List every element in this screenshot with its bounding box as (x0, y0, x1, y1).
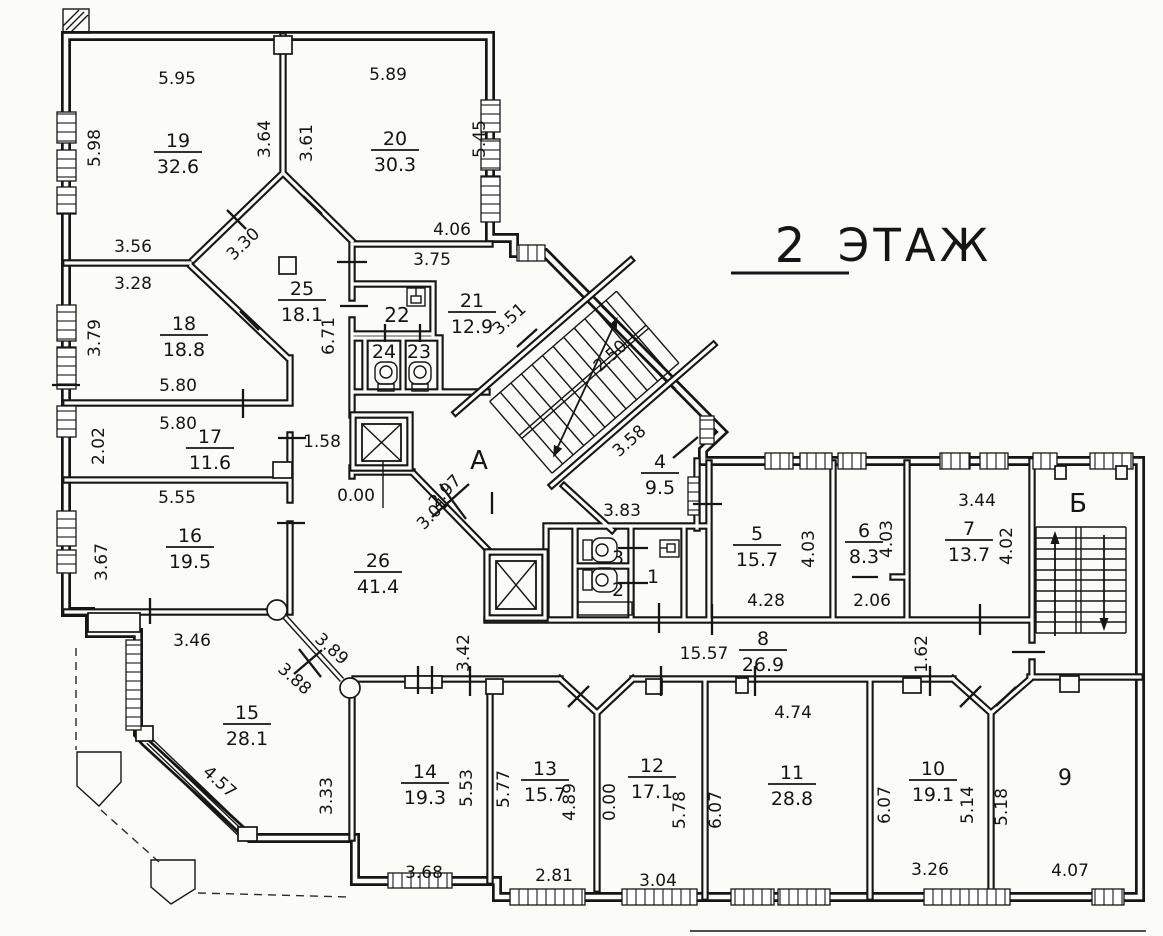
room-number-4: 4 (654, 451, 666, 473)
room-area-10: 19.1 (912, 784, 954, 806)
room-area-12: 17.1 (631, 781, 673, 803)
dimension-label: 5.14 (958, 786, 978, 824)
dimension-label: 3.44 (958, 491, 996, 511)
plan-geometry (646, 679, 662, 694)
plan-geometry (622, 889, 697, 905)
plan-geometry (800, 453, 832, 469)
dimension-label: 3.79 (85, 319, 105, 357)
room-area-26: 41.4 (357, 576, 399, 598)
room-number-20: 20 (383, 128, 407, 150)
dimension-label: 3.51 (489, 299, 531, 339)
porch-2 (151, 860, 195, 904)
plan-geometry (1060, 676, 1079, 692)
mark-label-9: 9 (1058, 766, 1072, 791)
mark-label-23: 23 (407, 341, 431, 363)
room-number-14: 14 (413, 761, 437, 783)
floor-title-number: 2 (775, 218, 806, 274)
plan-geometry (88, 613, 140, 632)
dimension-label: 15.57 (680, 644, 729, 664)
plan-geometry (240, 311, 259, 330)
plan-geometry (57, 150, 76, 181)
porch-1 (77, 752, 121, 806)
plan-geometry (57, 112, 76, 143)
dimension-label: 6.07 (706, 791, 726, 829)
plan-geometry (238, 827, 257, 841)
plan-geometry (380, 366, 392, 378)
room-area-4: 9.5 (645, 477, 675, 499)
room-area-20: 30.3 (374, 154, 416, 176)
room-number-11: 11 (780, 762, 804, 784)
dimension-label: 3.56 (114, 237, 152, 257)
plan-geometry (596, 544, 608, 556)
dimension-label: 1.58 (303, 432, 341, 452)
plan-geometry (731, 889, 774, 905)
plan-geometry (1092, 889, 1124, 905)
plan-geometry (126, 640, 141, 730)
scanned-floor-plan-page: 2 ЭТАЖ 1932.62030.32518.11818.81711.6161… (0, 0, 1163, 936)
plan-geometry (596, 574, 608, 586)
dimension-label: 6.71 (319, 317, 339, 355)
column-round (267, 600, 287, 620)
dimension-label: 5.55 (158, 488, 196, 508)
plan-geometry (405, 676, 442, 688)
plan-geometry (583, 540, 592, 560)
plan-geometry (1036, 527, 1126, 633)
dimension-label: 3.83 (603, 501, 641, 521)
floor-plan-svg: 2 ЭТАЖ 1932.62030.32518.11818.81711.6161… (0, 0, 1163, 936)
plan-geometry (57, 347, 76, 389)
plan-geometry (903, 678, 921, 693)
dimension-label: 0.00 (600, 783, 620, 821)
wc-room-23 (409, 362, 431, 391)
plan-geometry (924, 889, 1010, 905)
plan-geometry (486, 679, 503, 694)
plan-geometry (362, 424, 401, 461)
dimension-label: 3.04 (639, 871, 677, 891)
room-number-15: 15 (235, 702, 259, 724)
plan-geometry (375, 362, 397, 384)
room-area-25: 18.1 (281, 304, 323, 326)
room-number-7: 7 (963, 518, 975, 540)
dimension-label: 3.26 (911, 860, 949, 880)
dimension-label: 4.28 (747, 591, 785, 611)
plan-geometry (667, 544, 675, 552)
plan-geometry (63, 10, 88, 33)
title: 2 ЭТАЖ (731, 218, 992, 274)
dimension-label: 3.64 (255, 120, 275, 158)
room-area-19: 32.6 (157, 156, 199, 178)
room-area-7: 13.7 (948, 544, 990, 566)
wc-shelf (578, 602, 632, 615)
dimension-label: 2.06 (853, 591, 891, 611)
dimension-label: 0.00 (337, 486, 375, 506)
dimension-label: 4.03 (877, 520, 897, 558)
room-number-16: 16 (178, 525, 202, 547)
room-number-5: 5 (751, 523, 763, 545)
dimension-label: 5.80 (159, 414, 197, 434)
plan-geometry (765, 453, 793, 469)
plan-geometry (510, 889, 585, 905)
sink-room-1 (660, 540, 679, 557)
dimension-label: 3.33 (317, 777, 337, 815)
mark-label-3: 3 (612, 547, 624, 569)
columns (88, 36, 1079, 694)
dimension-label: 5.53 (457, 769, 477, 807)
dimension-label: 5.78 (670, 791, 690, 829)
dimension-label: 4.06 (433, 220, 471, 240)
room-area-18: 18.8 (163, 339, 205, 361)
plan-geometry (778, 889, 830, 905)
plan-geometry (1116, 466, 1127, 479)
dimension-label: 5.95 (158, 69, 196, 89)
room-area-11: 28.8 (771, 788, 813, 810)
dimension-label: 5.18 (992, 788, 1012, 826)
room-area-15: 28.1 (226, 728, 268, 750)
mark-label-24: 24 (372, 341, 396, 363)
plan-geometry (583, 570, 592, 590)
plan-geometry (481, 176, 500, 222)
room-number-12: 12 (640, 755, 664, 777)
dimension-label: 3.88 (274, 659, 316, 699)
plan-geometry (57, 187, 76, 214)
plan-geometry (274, 36, 292, 54)
plan-geometry (1100, 618, 1109, 631)
room-area-16: 19.5 (169, 551, 211, 573)
dimension-label: 4.07 (1051, 861, 1089, 881)
mark-label-2: 2 (612, 579, 624, 601)
dimension-label: 3.89 (311, 629, 353, 669)
plan-geometry (838, 453, 866, 469)
plan-geometry (1033, 453, 1057, 469)
plan-geometry (101, 810, 159, 862)
plan-geometry (700, 416, 714, 444)
plan-geometry (940, 453, 970, 469)
plan-geometry (1055, 466, 1066, 479)
dimension-label: 1.62 (912, 635, 932, 673)
room-number-18: 18 (172, 313, 196, 335)
dimension-label: 4.74 (774, 703, 812, 723)
plan-geometry (673, 437, 698, 458)
dimension-label: 2.02 (89, 427, 109, 465)
plan-geometry (736, 678, 748, 693)
dimension-label: 5.80 (159, 376, 197, 396)
dimension-label: 2.81 (535, 866, 573, 886)
dimension-label: 5.45 (470, 120, 490, 158)
room-number-13: 13 (533, 758, 557, 780)
dimension-label: 3.67 (92, 543, 112, 581)
room-area-17: 11.6 (189, 452, 231, 474)
room-number-19: 19 (166, 130, 190, 152)
room-area-5: 15.7 (736, 549, 778, 571)
plan-geometry (198, 893, 350, 897)
room-number-10: 10 (921, 758, 945, 780)
room-number-26: 26 (366, 550, 390, 572)
plan-geometry (517, 245, 545, 261)
plan-geometry (411, 296, 421, 303)
dimension-label: 5.89 (369, 65, 407, 85)
plan-geometry (547, 442, 563, 457)
dimension-label: 5.98 (85, 129, 105, 167)
floor-title-word: ЭТАЖ (838, 219, 992, 272)
column-round (340, 678, 360, 698)
mark-label-22: 22 (384, 303, 409, 327)
mark-label-Б: Б (1069, 489, 1087, 519)
room-area-8: 26.9 (742, 654, 784, 676)
plan-geometry (57, 550, 76, 573)
room-number-21: 21 (460, 290, 484, 312)
plan-geometry (273, 462, 292, 478)
column-square (279, 257, 296, 274)
dimension-label: 4.89 (560, 783, 580, 821)
dimension-label: 6.07 (875, 786, 895, 824)
room-number-17: 17 (198, 426, 222, 448)
room-number-6: 6 (858, 520, 870, 542)
dimension-label: 3.46 (173, 631, 211, 651)
dimension-label: 4.03 (799, 530, 819, 568)
room-area-14: 19.3 (404, 787, 446, 809)
plan-geometry (688, 477, 699, 515)
dimension-label: 5.77 (494, 770, 514, 808)
dimension-label: 3.61 (297, 124, 317, 162)
room-number-25: 25 (290, 278, 314, 300)
room-area-21: 12.9 (451, 316, 493, 338)
dimension-label: 4.02 (997, 527, 1017, 565)
elevator-1 (362, 424, 401, 461)
dimension-label: 3.42 (454, 634, 474, 672)
mark-label-А: А (470, 446, 488, 476)
room-area-6: 8.3 (849, 546, 879, 568)
plan-geometry (496, 561, 536, 609)
dimension-label: 3.28 (114, 274, 152, 294)
plan-geometry (57, 305, 76, 341)
dimension-label: 3.68 (405, 863, 443, 883)
wc-room-24 (375, 362, 397, 391)
plan-geometry (57, 511, 76, 546)
room-number-8: 8 (757, 628, 769, 650)
plan-geometry (57, 406, 76, 437)
dimension-label: 3.75 (413, 250, 451, 270)
plan-geometry (409, 362, 431, 384)
plan-geometry (414, 366, 426, 378)
mark-label-1: 1 (647, 566, 659, 588)
plan-geometry (980, 453, 1008, 469)
